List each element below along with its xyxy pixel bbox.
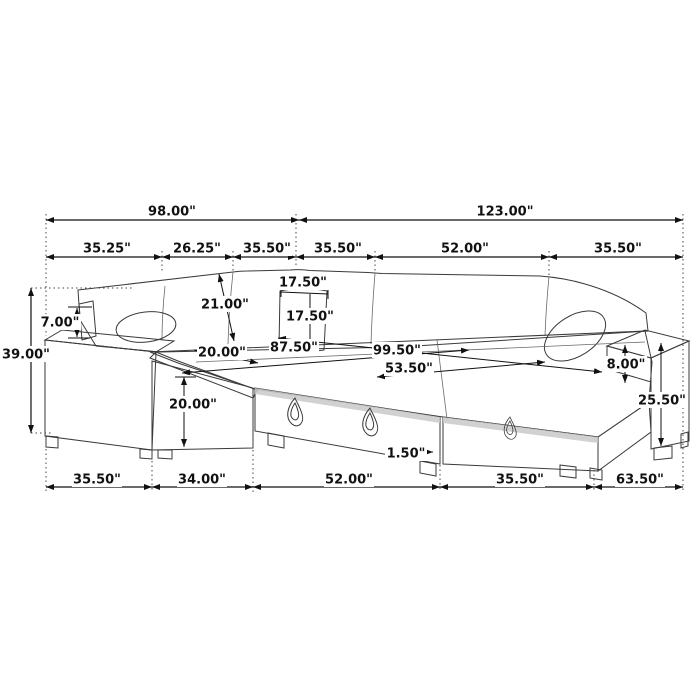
- handle-icon: [288, 398, 303, 426]
- backrest-seam: [371, 273, 375, 344]
- bed-box-right-side: [598, 402, 651, 471]
- dim-chaise-seat-width: 20.00": [198, 346, 246, 361]
- dim-seat-span: 87.50": [270, 341, 318, 356]
- dim-bed-span: 99.50": [373, 344, 421, 359]
- dim-bottom-seg-2: 34.00": [178, 473, 226, 488]
- dim-right-arm-height: 25.50": [638, 394, 686, 409]
- sofa-illustration: [45, 270, 689, 480]
- dim-top-seg-5: 52.00": [441, 242, 489, 257]
- dim-top-seg-2: 26.25": [173, 242, 221, 257]
- dim-top-seg-1: 35.25": [83, 242, 131, 257]
- backrest-seam: [545, 276, 549, 336]
- dim-bottom-seg-3: 52.00": [325, 473, 373, 488]
- dim-leg-height: 1.50": [387, 447, 426, 462]
- dim-arm-pillow-height: 7.00": [41, 316, 80, 331]
- dim-bottom-seg-5: 63.50": [616, 473, 664, 488]
- dim-overall-top-right: 123.00": [477, 205, 534, 220]
- dim-bottom-seg-4: 35.50": [496, 473, 544, 488]
- dimension-diagram: 98.00" 123.00" 35.25" 26.25" 35.50" 35.5…: [0, 0, 700, 700]
- sofa-leg: [590, 468, 602, 480]
- sofa-leg: [681, 432, 688, 448]
- dim-seat-height: 20.00": [169, 398, 217, 413]
- sofa-leg: [654, 446, 672, 460]
- sofa-leg: [560, 465, 576, 478]
- dim-corner-cushion-height: 17.50": [286, 310, 334, 325]
- sofa-leg: [140, 449, 152, 459]
- dim-overall-top-left: 98.00": [148, 205, 196, 220]
- dim-bottom-seg-1: 35.50": [73, 473, 121, 488]
- bed-edge-band: [443, 417, 598, 443]
- dim-overall-height: 39.00": [2, 348, 50, 363]
- dim-top-seg-3: 35.50": [243, 242, 291, 257]
- dim-top-seg-4: 35.50": [314, 242, 362, 257]
- dim-back-cushion-depth: 21.00": [201, 298, 249, 313]
- bed-edge-band: [255, 388, 440, 423]
- diagram-canvas: 98.00" 123.00" 35.25" 26.25" 35.50" 35.5…: [0, 0, 700, 700]
- sofa-leg: [158, 450, 172, 459]
- dim-corner-cushion-width: 17.50": [279, 276, 327, 291]
- left-arm-front: [45, 340, 156, 450]
- sofa-leg: [420, 461, 436, 476]
- dim-top-seg-6: 35.50": [594, 242, 642, 257]
- dim-arm-above-seat: 8.00": [607, 358, 646, 373]
- dim-bed-depth: 53.50": [385, 362, 433, 377]
